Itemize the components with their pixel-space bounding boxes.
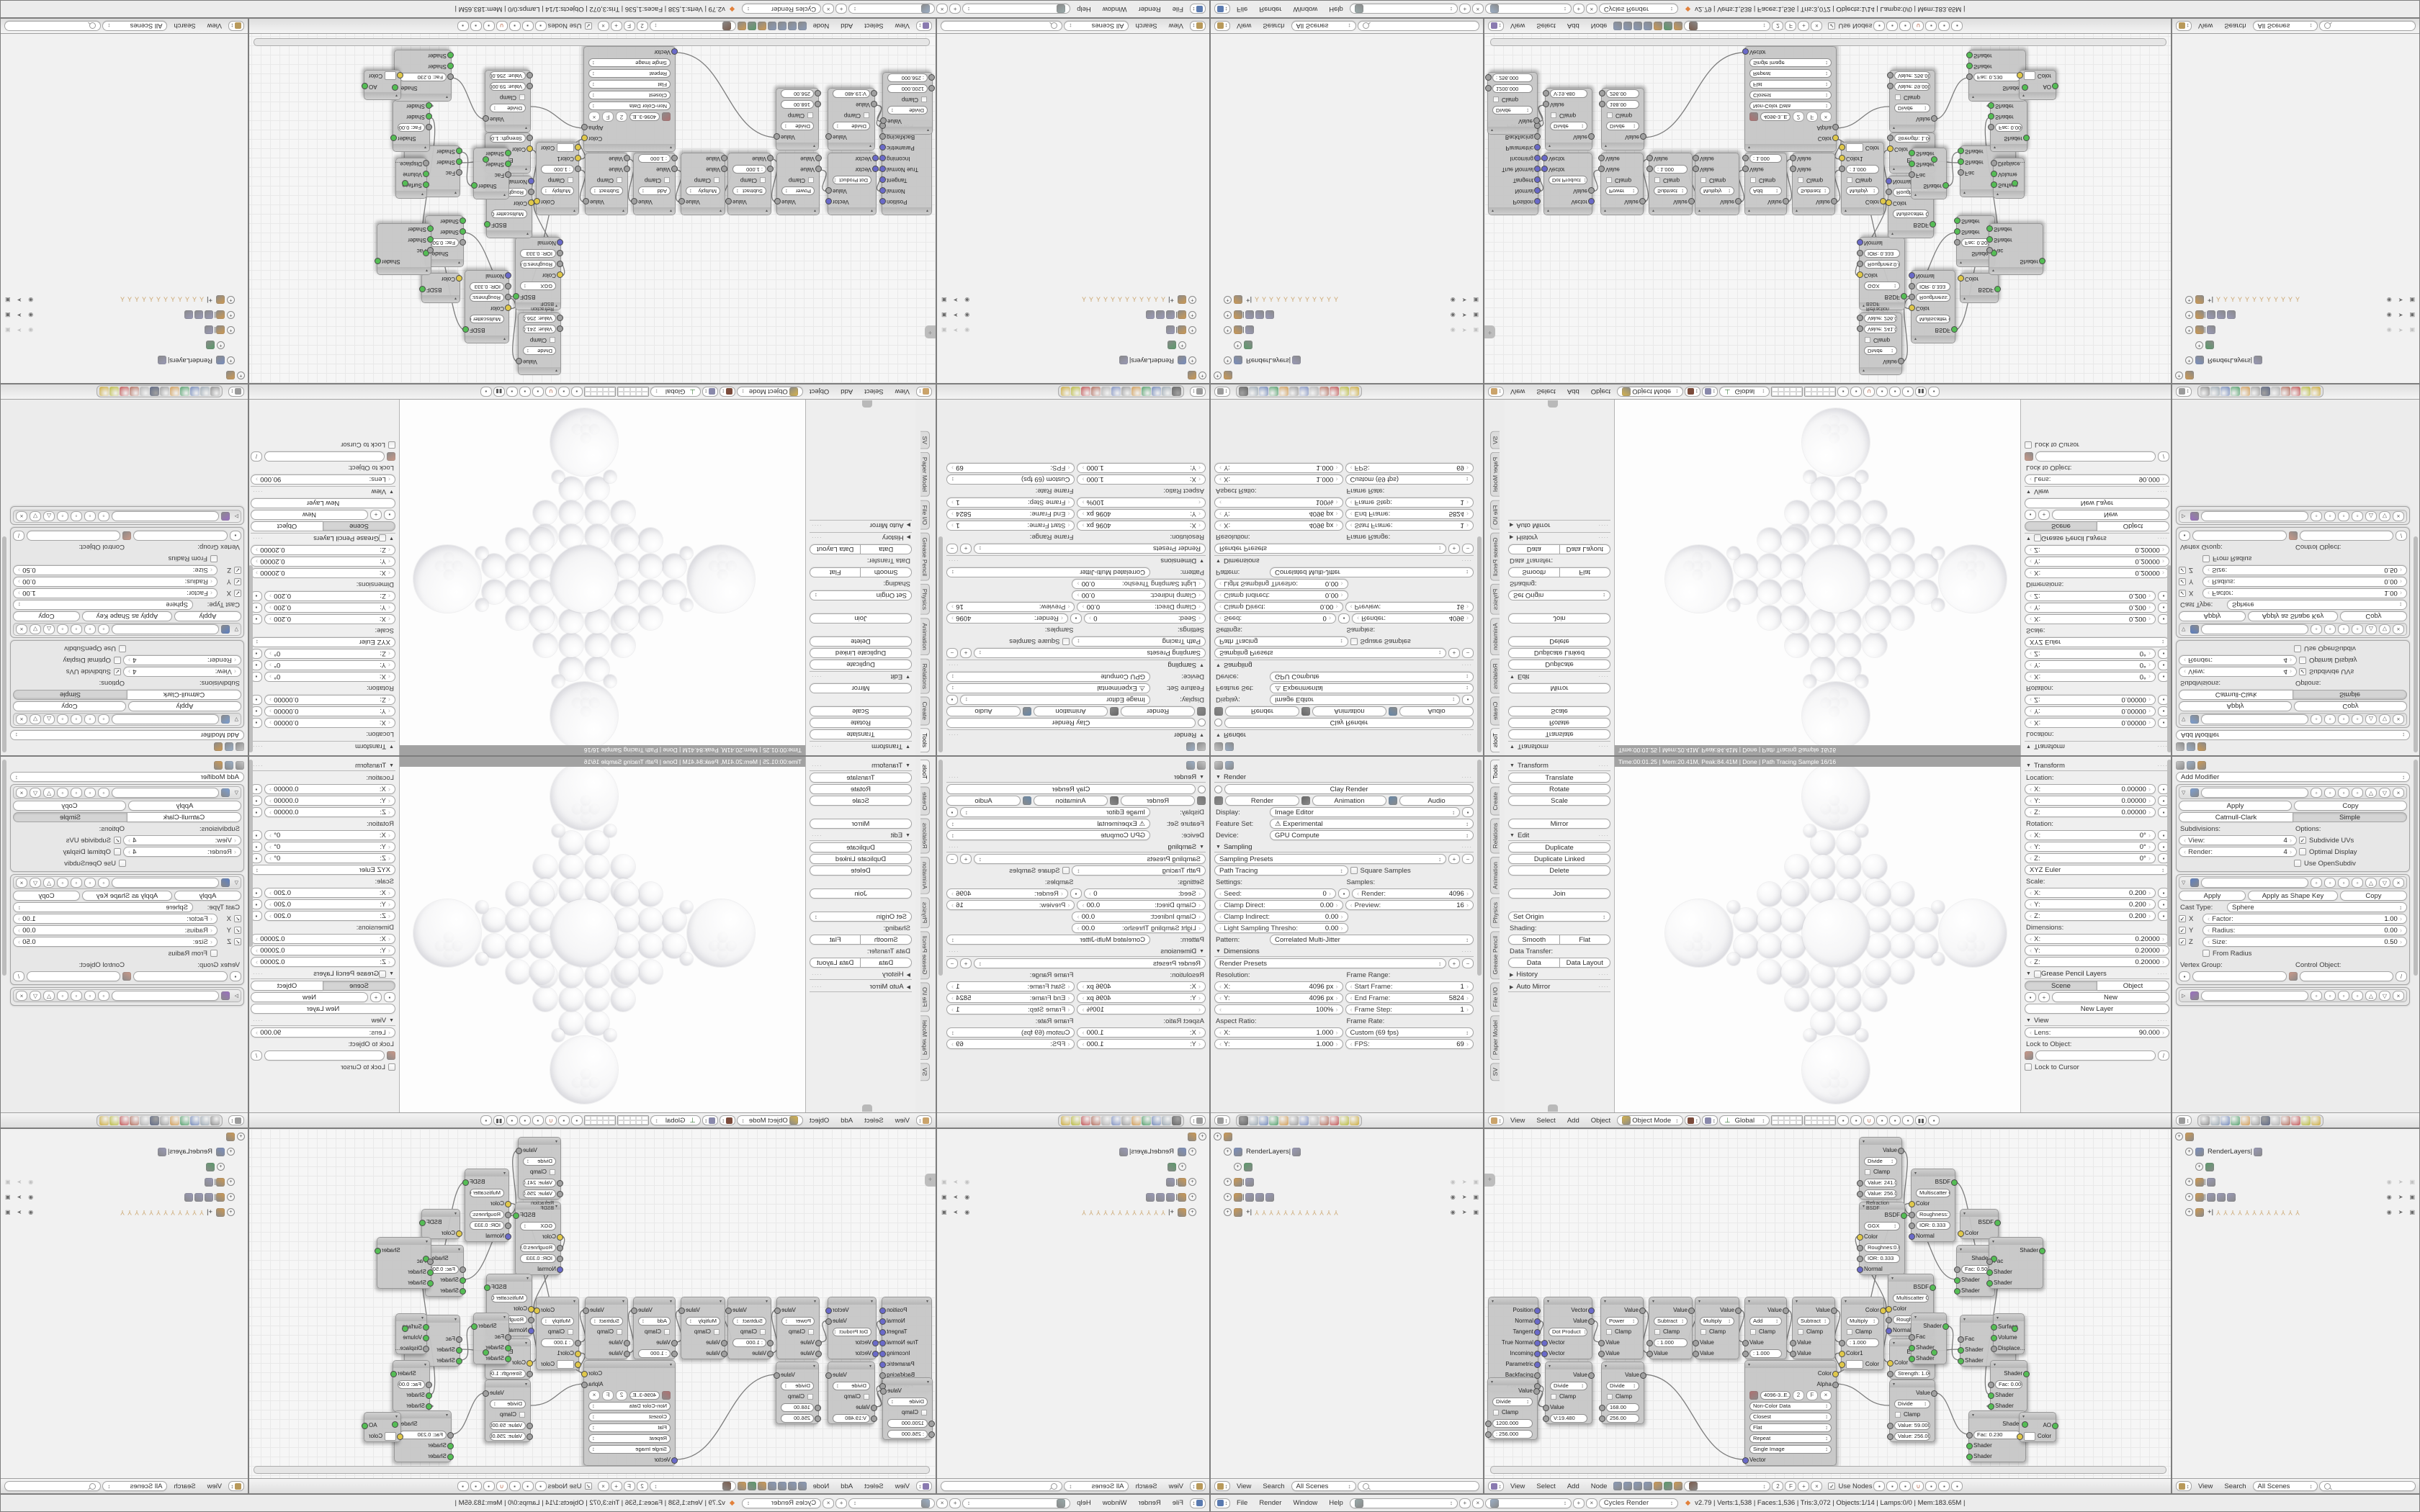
node-dropdown[interactable]: Subtract↕ bbox=[1797, 187, 1830, 196]
node-menu-select[interactable]: Select bbox=[1531, 1482, 1560, 1490]
node-number-field[interactable]: V:19.480 bbox=[1550, 90, 1587, 99]
input-socket-sh[interactable] bbox=[505, 1345, 511, 1351]
input-socket-vec[interactable] bbox=[872, 1351, 879, 1357]
output-socket-val[interactable] bbox=[1639, 198, 1646, 204]
node-dropdown[interactable]: Divide↕ bbox=[1894, 104, 1930, 113]
cast-modifier-icon[interactable] bbox=[2190, 878, 2199, 887]
toolshelf-tab-relations[interactable]: Relations bbox=[1490, 658, 1500, 693]
radio-icon[interactable] bbox=[1198, 719, 1206, 727]
modifier-icon[interactable] bbox=[1146, 311, 1155, 320]
button-animation[interactable]: Animation bbox=[1312, 796, 1386, 806]
outliner-row[interactable]: + bbox=[1211, 368, 1483, 383]
node[interactable]: ▾Refraction BSDFBSDFGGX↕ColorRoughnes:0.… bbox=[1859, 237, 1905, 310]
input-socket-sh[interactable] bbox=[1986, 1280, 1993, 1287]
input-socket-value[interactable] bbox=[505, 1223, 511, 1229]
select-image-editor[interactable]: Image Editor↕ bbox=[960, 807, 1150, 817]
scenes-filter-select[interactable]: All Scenes↕ bbox=[2253, 1481, 2318, 1491]
node-header[interactable]: ▾ bbox=[1912, 1313, 1946, 1320]
input-field[interactable] bbox=[2035, 451, 2156, 462]
input-socket-value[interactable] bbox=[1543, 90, 1549, 96]
checkbox-y[interactable]: ✓Y bbox=[220, 927, 241, 935]
outliner-menu-view[interactable]: View bbox=[1164, 22, 1188, 30]
modifier-render-toggle-icon[interactable]: ▫ bbox=[98, 714, 109, 724]
button-apply[interactable]: Apply bbox=[2179, 701, 2292, 711]
info-menu-file[interactable]: File bbox=[1232, 5, 1252, 13]
node-number-field[interactable]: : 1.000 bbox=[1654, 166, 1688, 174]
node[interactable]: ▾ShaderFac: 0.000ShaderShader bbox=[1990, 100, 2027, 152]
node-menu-view[interactable]: View bbox=[890, 1482, 915, 1490]
input-socket-val[interactable] bbox=[721, 155, 727, 161]
toolshelf-tab-create[interactable]: Create bbox=[921, 787, 931, 816]
checkbox-box[interactable] bbox=[1350, 638, 1358, 645]
modifier-delete-icon[interactable]: × bbox=[16, 878, 27, 888]
node[interactable]: ▾ValueSubtract↕Clamp: 1.000Value bbox=[1649, 153, 1693, 215]
input-socket-value[interactable] bbox=[1887, 135, 1894, 141]
input-field[interactable] bbox=[264, 451, 385, 462]
number-field[interactable]: Y:1.000 bbox=[1077, 1039, 1206, 1049]
unlink-icon[interactable]: × bbox=[823, 1498, 834, 1508]
outliner-row[interactable]: + bbox=[937, 338, 1209, 353]
number-field[interactable]: Size:0.50 bbox=[13, 565, 218, 575]
node-collapse-icon[interactable]: ▾ bbox=[871, 209, 873, 214]
number-field[interactable]: 100% bbox=[1214, 1004, 1343, 1014]
modifier-render-toggle-icon[interactable]: ▫ bbox=[2311, 624, 2322, 634]
node-dropdown[interactable]: Add↕ bbox=[638, 1317, 671, 1326]
checkbox-box[interactable] bbox=[1607, 1394, 1613, 1400]
select-correlated-multi-jitter[interactable]: Correlated Multi-Jitter↕ bbox=[946, 567, 1150, 577]
input-socket-value[interactable] bbox=[526, 1371, 533, 1377]
use-nodes-checkbox[interactable]: ✓Use Nodes bbox=[548, 1482, 592, 1490]
toolshelf-tab-tools[interactable]: Tools bbox=[1490, 760, 1500, 784]
node-menu-add[interactable]: Add bbox=[1562, 22, 1585, 30]
eyedropper-icon[interactable]: / bbox=[251, 451, 262, 462]
particles-tab-icon[interactable] bbox=[1071, 1116, 1080, 1125]
button-delete[interactable]: Delete bbox=[810, 865, 912, 876]
unlink-icon[interactable]: × bbox=[1472, 1498, 1484, 1508]
input-socket-value[interactable] bbox=[1857, 1191, 1863, 1197]
select-render-presets[interactable]: Render Presets↕ bbox=[1214, 958, 1446, 968]
input-socket-val[interactable] bbox=[815, 1351, 822, 1357]
button-apply[interactable]: Apply bbox=[174, 891, 241, 901]
checkbox-box[interactable] bbox=[1895, 95, 1901, 101]
input-socket-sh[interactable] bbox=[1954, 228, 1960, 235]
expand-icon[interactable]: + bbox=[2185, 311, 2193, 319]
node-header[interactable]: ▾ bbox=[1912, 1169, 1955, 1176]
node-dropdown[interactable]: Divide↕ bbox=[781, 1382, 814, 1390]
paste-nodes-icon[interactable]: ▪ bbox=[1951, 1481, 1963, 1491]
eye-toggle-icon[interactable]: ◉ bbox=[2387, 312, 2392, 318]
unlink-icon[interactable]: × bbox=[598, 1481, 609, 1491]
color-swatch[interactable] bbox=[557, 1360, 574, 1369]
mesh-data-icon[interactable] bbox=[216, 1178, 225, 1187]
toolshelf-tab-physics[interactable]: Physics bbox=[1490, 584, 1500, 615]
node-collapse-icon[interactable]: ▾ bbox=[1891, 232, 1894, 237]
cursor-toggle-icon[interactable]: ➤ bbox=[1462, 1194, 1467, 1200]
viewport-menu-select[interactable]: Select bbox=[859, 388, 888, 396]
input-socket-sh[interactable] bbox=[505, 1356, 511, 1362]
add-icon[interactable]: + bbox=[2038, 992, 2050, 1002]
node[interactable]: ▾ValueMultiply↕ClampValueValue bbox=[681, 1297, 725, 1359]
checkbox-lock-to-cursor[interactable]: Lock to Cursor bbox=[2025, 441, 2169, 449]
expand-icon[interactable]: + bbox=[1224, 326, 1232, 334]
node-header[interactable]: ▾Refraction BSDF bbox=[1860, 302, 1904, 310]
node[interactable]: ▾ValueSubtract↕Clamp: 1.000Value bbox=[1649, 1297, 1693, 1359]
expand-icon[interactable]: + bbox=[217, 341, 225, 349]
node-dropdown[interactable]: Multiscatter GGX↕ bbox=[1916, 315, 1950, 324]
eyedropper-icon[interactable]: / bbox=[2396, 531, 2407, 541]
node[interactable]: ▾ValueMultiply↕ClampValueValue bbox=[1695, 153, 1739, 215]
mesh-icon[interactable] bbox=[1255, 1193, 1264, 1202]
number-field[interactable]: Y:0.20000 bbox=[2025, 945, 2169, 955]
node-header[interactable]: ▾ bbox=[777, 207, 819, 215]
snap-mode-icon[interactable]: ▪ bbox=[483, 1481, 495, 1491]
node-header[interactable]: ▾ bbox=[393, 1361, 429, 1368]
output-socket-vec[interactable] bbox=[1534, 1362, 1541, 1368]
screen-layout-icon[interactable] bbox=[1355, 5, 1363, 14]
checkbox-box[interactable] bbox=[550, 1169, 555, 1175]
node-number-field[interactable]: : 1.000 bbox=[1749, 155, 1782, 163]
node-number-field[interactable]: : 256.000 bbox=[887, 1430, 928, 1439]
eyedropper-icon[interactable]: / bbox=[13, 971, 24, 981]
output-socket-vec[interactable] bbox=[1588, 1308, 1595, 1314]
input-field[interactable] bbox=[2035, 1050, 2156, 1061]
scene-icon[interactable] bbox=[2185, 1133, 2194, 1141]
modifier-cage-toggle-icon[interactable]: ▫ bbox=[57, 511, 68, 521]
node-header[interactable]: ▾ bbox=[1488, 1378, 1537, 1385]
layer-cell[interactable] bbox=[1772, 387, 1778, 392]
toolshelf-scroll-nub[interactable] bbox=[1548, 1104, 1558, 1112]
pin-icon[interactable]: ▪ bbox=[535, 1481, 547, 1491]
button-mirror[interactable]: Mirror bbox=[1508, 683, 1610, 693]
add-modifier-select[interactable]: Add Modifier↕ bbox=[10, 730, 244, 740]
compositing-nodes-icon[interactable] bbox=[1623, 22, 1632, 30]
node-number-field[interactable]: Strength: 1.000 bbox=[1894, 1369, 1930, 1378]
output-socket-val[interactable] bbox=[1831, 198, 1837, 204]
pin-icon[interactable]: ▪ bbox=[1873, 21, 1885, 31]
input-socket-value[interactable] bbox=[1599, 101, 1605, 107]
input-socket-vec[interactable] bbox=[1886, 178, 1892, 184]
modifier-render-toggle-icon[interactable]: ▫ bbox=[98, 788, 109, 798]
modifier-collapse-icon[interactable]: ▷ bbox=[2182, 993, 2185, 999]
expand-icon[interactable]: + bbox=[227, 296, 235, 304]
input-socket-val[interactable] bbox=[1543, 101, 1549, 107]
material-select[interactable]: ↕ bbox=[1684, 1481, 1770, 1491]
node-header[interactable]: ▾ bbox=[1991, 1361, 2027, 1368]
toolshelf-scroll-nub[interactable] bbox=[862, 400, 872, 408]
button-audio[interactable]: Audio bbox=[946, 796, 1021, 806]
camera-toggle-icon[interactable]: ▣ bbox=[5, 1179, 11, 1185]
outliner-row[interactable]: + | ◉➤▣ bbox=[1211, 1189, 1483, 1205]
modifier-move-up-icon[interactable]: △ bbox=[2365, 991, 2377, 1001]
checkbox-box[interactable] bbox=[119, 860, 126, 867]
input-socket-val[interactable] bbox=[1598, 1351, 1605, 1357]
node-header[interactable]: ▾ bbox=[1544, 1297, 1592, 1305]
node-editor-grid[interactable]: +▾PositionNormalTangentTrue NormalIncomi… bbox=[249, 33, 936, 383]
checkbox-box[interactable] bbox=[664, 178, 670, 184]
button-animation[interactable]: Animation bbox=[1034, 796, 1108, 806]
checkbox-x[interactable]: ✓X bbox=[2179, 590, 2200, 598]
layer-cell[interactable] bbox=[1790, 392, 1796, 396]
eye-toggle-icon[interactable]: ◉ bbox=[964, 312, 969, 318]
render-opengl-icon[interactable]: ▪ bbox=[1889, 387, 1901, 397]
lamp-icon[interactable] bbox=[1178, 1193, 1186, 1202]
output-socket-vec[interactable] bbox=[879, 1329, 886, 1336]
image-name-field[interactable]: 4096-3..E... bbox=[1760, 113, 1791, 122]
number-field[interactable]: Y:0.20000 bbox=[251, 945, 395, 955]
object-tab-icon[interactable] bbox=[2241, 387, 2250, 397]
layer-cell[interactable] bbox=[1811, 1120, 1817, 1125]
toolshelf-tab-tools[interactable]: Tools bbox=[921, 728, 931, 752]
output-socket-sh[interactable] bbox=[390, 1371, 397, 1377]
segment-smooth[interactable]: Smooth bbox=[861, 567, 913, 577]
unlink-icon[interactable]: × bbox=[1820, 1390, 1832, 1400]
viewport-editor-type-button[interactable]: ↕ bbox=[916, 1115, 932, 1125]
select-set-origin[interactable]: Set Origin↕ bbox=[810, 590, 912, 600]
select-path-tracing[interactable]: Path Tracing↕ bbox=[1214, 636, 1348, 647]
number-field[interactable]: X:0.20000 bbox=[251, 568, 395, 578]
checkbox-z[interactable]: ✓Z bbox=[220, 938, 241, 946]
number-field[interactable]: FPS:69 bbox=[1345, 1039, 1474, 1049]
node-header[interactable]: ▾ bbox=[1793, 1297, 1834, 1305]
layer-cell[interactable] bbox=[1784, 387, 1790, 392]
node[interactable]: ▾ColorMultiply↕Clamp: 1.000Color1Color bbox=[1841, 1297, 1884, 1370]
node-collapse-icon[interactable]: ▾ bbox=[927, 1380, 929, 1385]
output-socket-val[interactable] bbox=[631, 198, 637, 204]
mode-shield-icon[interactable] bbox=[789, 387, 798, 396]
output-socket-val[interactable] bbox=[1534, 133, 1541, 140]
camera-toggle-icon[interactable]: ▣ bbox=[1473, 1194, 1479, 1200]
button-mirror[interactable]: Mirror bbox=[810, 819, 912, 829]
pivot-center-button[interactable]: ↕ bbox=[1702, 1115, 1718, 1125]
object-cube-icon[interactable] bbox=[123, 972, 132, 981]
unlink-icon[interactable]: × bbox=[1586, 1498, 1597, 1508]
output-socket-val[interactable] bbox=[1832, 1382, 1839, 1388]
output-socket-val[interactable] bbox=[1931, 115, 1937, 122]
input-field[interactable] bbox=[134, 971, 228, 981]
snap-mode-icon[interactable]: ▪ bbox=[1925, 21, 1937, 31]
node-number-field[interactable]: 168.00 bbox=[1606, 1403, 1639, 1412]
segment-data[interactable]: Data bbox=[861, 544, 913, 554]
output-socket-val[interactable] bbox=[774, 1308, 781, 1314]
input-socket-sh[interactable] bbox=[1986, 236, 1993, 243]
node-dropdown[interactable]: Closest↕ bbox=[588, 1413, 671, 1421]
node-header[interactable]: ▾ bbox=[1860, 1138, 1901, 1145]
node-number-field[interactable]: 256.00 bbox=[1606, 1414, 1639, 1423]
node-collapse-icon[interactable]: ▾ bbox=[814, 209, 816, 214]
node-collapse-icon[interactable]: ▾ bbox=[1748, 1299, 1750, 1304]
checkbox-box[interactable] bbox=[1606, 1329, 1612, 1335]
modifier-name-field[interactable] bbox=[2201, 624, 2308, 634]
select-custom-fps-[interactable]: Custom (69 fps)↕ bbox=[946, 474, 1075, 485]
renderlayer-icon[interactable] bbox=[1178, 356, 1186, 365]
node-header[interactable]: ▾ bbox=[2020, 1413, 2056, 1420]
expand-icon[interactable]: + bbox=[1188, 1178, 1196, 1186]
checkbox-box[interactable]: ✓ bbox=[2179, 590, 2186, 597]
pencil-icon[interactable]: ▪ bbox=[2025, 510, 2036, 520]
node-header[interactable]: ▾ bbox=[1989, 267, 2043, 274]
output-socket-val[interactable] bbox=[483, 1390, 489, 1397]
input-socket-val[interactable] bbox=[1742, 1340, 1749, 1346]
vertexgroup-icon[interactable]: ▪ bbox=[230, 531, 241, 541]
output-socket-sh[interactable] bbox=[462, 1179, 469, 1186]
add-modifier-select[interactable]: Add Modifier↕ bbox=[2176, 772, 2410, 782]
remove-icon[interactable]: − bbox=[946, 854, 958, 864]
checkbox-box[interactable] bbox=[2299, 848, 2306, 855]
node[interactable]: ▾ValueAdd↕ClampValue: 1.000 bbox=[1744, 1297, 1787, 1359]
clock-icon[interactable]: ▪ bbox=[1338, 888, 1350, 899]
layer-cell[interactable] bbox=[1817, 387, 1823, 392]
cursor-toggle-icon[interactable]: ➤ bbox=[2398, 1179, 2403, 1185]
select-custom-fps-[interactable]: Custom (69 fps)↕ bbox=[1345, 1027, 1474, 1038]
button-clay-render[interactable]: Clay Render bbox=[946, 784, 1196, 794]
button-audio[interactable]: Audio bbox=[1399, 796, 1474, 806]
number-field[interactable]: Preview:16 bbox=[1345, 602, 1474, 612]
node-collapse-icon[interactable]: ▾ bbox=[1698, 1299, 1700, 1304]
material-tab-icon[interactable] bbox=[1091, 387, 1101, 397]
layer-cell[interactable] bbox=[618, 392, 624, 396]
button-mirror[interactable]: Mirror bbox=[810, 683, 912, 693]
input-socket-sh[interactable] bbox=[427, 1269, 434, 1276]
panel-header-dimensions[interactable]: ▼Dimensions···· bbox=[946, 555, 1206, 565]
node-header[interactable]: ▾ bbox=[485, 1380, 530, 1387]
expand-icon[interactable]: + bbox=[2175, 372, 2183, 379]
data-tab-icon[interactable] bbox=[1309, 1116, 1319, 1125]
modifier-move-up-icon[interactable]: △ bbox=[2365, 788, 2377, 798]
modifier-editmode-toggle-icon[interactable]: ▫ bbox=[71, 991, 82, 1001]
output-socket-sh[interactable] bbox=[1901, 1212, 1907, 1219]
button-copy[interactable]: Copy bbox=[13, 891, 80, 901]
node-header[interactable]: ▾ bbox=[828, 1362, 874, 1369]
number-field[interactable]: Light Sampling Thresho:0.00 bbox=[1072, 579, 1206, 589]
node-dropdown[interactable]: Non-Color Data↕ bbox=[1749, 102, 1832, 111]
node-collapse-icon[interactable]: ▾ bbox=[766, 1299, 768, 1304]
modifier-collapse-icon[interactable]: ▽ bbox=[2182, 880, 2185, 886]
number-field[interactable]: Z:0.200 bbox=[2025, 911, 2156, 921]
checkbox-box[interactable] bbox=[864, 1394, 869, 1400]
button-copy[interactable]: Copy bbox=[2294, 701, 2407, 711]
input-socket-value[interactable] bbox=[1485, 1431, 1492, 1438]
modifier-view-toggle-icon[interactable]: ▫ bbox=[2324, 624, 2336, 634]
output-socket-val[interactable] bbox=[1588, 1318, 1595, 1325]
input-socket-val[interactable] bbox=[721, 1351, 727, 1357]
panel-header-edit[interactable]: ▼Edit···· bbox=[810, 831, 912, 841]
node-collapse-icon[interactable]: ▾ bbox=[555, 1139, 557, 1144]
modifier-collapse-icon[interactable]: ▽ bbox=[2182, 716, 2185, 722]
segment-scene[interactable]: Scene bbox=[323, 521, 395, 531]
subsurf-modifier-icon[interactable] bbox=[2190, 788, 2199, 797]
panel-header-dimensions[interactable]: ▼Dimensions···· bbox=[1214, 555, 1474, 565]
outliner-row[interactable]: + bbox=[2172, 338, 2419, 353]
screencast-icon[interactable]: ▪ bbox=[480, 387, 492, 397]
info-editor-type-button[interactable]: ↕ bbox=[1214, 1498, 1230, 1508]
layer-cell[interactable] bbox=[1796, 1120, 1802, 1125]
pivot-center-button[interactable]: ↕ bbox=[1702, 387, 1718, 397]
toolshelf-tab-file-i-o[interactable]: File I/O bbox=[921, 500, 931, 529]
button-copy[interactable]: Copy bbox=[2340, 891, 2407, 901]
button-join[interactable]: Join bbox=[1508, 888, 1610, 899]
input-socket-sh[interactable] bbox=[447, 1454, 454, 1460]
node-dropdown[interactable]: Repeat↕ bbox=[1749, 70, 1832, 78]
orientation-select[interactable]: ⊥Global↕ bbox=[650, 387, 701, 397]
output-socket-vec[interactable] bbox=[1534, 1329, 1541, 1336]
snap-target-icon[interactable]: ▪ bbox=[558, 1115, 570, 1125]
outliner-search-field[interactable] bbox=[941, 1481, 1062, 1491]
checkbox-box[interactable] bbox=[210, 950, 218, 957]
layer-cell[interactable] bbox=[1805, 392, 1811, 396]
node-header[interactable]: ▾ bbox=[1842, 207, 1883, 215]
input-socket-col[interactable] bbox=[1857, 271, 1863, 278]
number-field[interactable]: X:0.00000 bbox=[264, 718, 395, 728]
number-field[interactable]: Y:4096 px bbox=[1214, 509, 1343, 519]
node[interactable]: ▾ValueDivide↕ClampValueV:19.480 bbox=[1545, 88, 1592, 150]
material-slot-count[interactable]: 2 bbox=[1772, 21, 1783, 31]
object-cube-icon[interactable] bbox=[387, 452, 395, 461]
node-header[interactable]: ▾Refraction BSDF bbox=[1860, 1202, 1904, 1210]
mesh-icon[interactable] bbox=[194, 1193, 203, 1202]
pivot-center-button[interactable]: ↕ bbox=[702, 387, 718, 397]
input-socket-value[interactable] bbox=[526, 1423, 533, 1429]
cursor-toggle-icon[interactable]: ➤ bbox=[1462, 297, 1467, 303]
layer-cell[interactable] bbox=[1805, 1120, 1811, 1125]
input-socket-sh[interactable] bbox=[1988, 1392, 1994, 1399]
modifier-delete-icon[interactable]: × bbox=[2393, 624, 2404, 634]
context-render-icon[interactable] bbox=[1186, 761, 1195, 770]
eye-toggle-icon[interactable]: ◉ bbox=[964, 1194, 969, 1200]
node-number-field[interactable]: Roughness: 0.000 bbox=[1916, 1210, 1950, 1219]
input-socket-val[interactable] bbox=[1598, 1340, 1605, 1346]
camera-toggle-icon[interactable]: ▣ bbox=[1473, 1209, 1479, 1215]
render-tab-icon[interactable] bbox=[2200, 387, 2210, 397]
checkbox-box[interactable] bbox=[714, 178, 720, 184]
panel-header-transform[interactable]: ▼Transform···· bbox=[810, 761, 912, 771]
output-socket-sh[interactable] bbox=[1901, 293, 1907, 300]
input-socket-vec[interactable] bbox=[671, 1457, 678, 1464]
node-dropdown[interactable]: Closest↕ bbox=[1749, 91, 1832, 100]
modifier-view-toggle-icon[interactable]: ▫ bbox=[84, 991, 96, 1001]
select-xyz-euler[interactable]: XYZ Euler↕ bbox=[2025, 865, 2169, 875]
number-field[interactable]: X:1.000 bbox=[1077, 1027, 1206, 1038]
object-tab-icon[interactable] bbox=[170, 387, 179, 397]
output-socket-val[interactable] bbox=[825, 1318, 832, 1325]
viewport-shading-button[interactable]: ↕ bbox=[1685, 1115, 1700, 1125]
node-collapse-icon[interactable]: ▾ bbox=[1604, 1299, 1606, 1304]
node-dropdown[interactable]: Non-Color Data↕ bbox=[1749, 1402, 1832, 1410]
output-socket-val[interactable] bbox=[1832, 124, 1839, 130]
input-socket-val[interactable] bbox=[1598, 166, 1605, 172]
panel-header-sampling[interactable]: ▼Sampling···· bbox=[946, 842, 1206, 852]
node[interactable]: ▾ShaderFacShaderShader bbox=[1989, 1237, 2043, 1289]
layer-cell[interactable] bbox=[1784, 1120, 1790, 1125]
mesh-data-icon[interactable] bbox=[1234, 1178, 1242, 1187]
outliner-search-field[interactable] bbox=[941, 21, 1062, 31]
modifier-view-toggle-icon[interactable]: ▫ bbox=[84, 714, 96, 724]
select-sampling-presets[interactable]: Sampling Presets↕ bbox=[974, 854, 1206, 864]
shader-nodes-icon[interactable] bbox=[1613, 1482, 1622, 1490]
panel-header-edit[interactable]: ▼Edit···· bbox=[1508, 831, 1610, 841]
outliner-row[interactable]: + | ◉➤▣ bbox=[2172, 1189, 2419, 1205]
button-audio[interactable]: Audio bbox=[946, 706, 1021, 716]
segment-simple[interactable]: Simple bbox=[13, 812, 127, 822]
node-number-field[interactable]: Roughnes:0.000 bbox=[1864, 1243, 1900, 1252]
node-header[interactable]: ▾ bbox=[1649, 1297, 1692, 1305]
number-field[interactable]: Lens:90.000 bbox=[251, 1027, 395, 1038]
number-field[interactable]: X:0.00000 bbox=[264, 784, 395, 794]
node-collapse-icon[interactable]: ▾ bbox=[1796, 209, 1798, 214]
segment-flat[interactable]: Flat bbox=[810, 935, 861, 945]
cursor-toggle-icon[interactable]: ➤ bbox=[1462, 327, 1467, 333]
checkbox-box[interactable] bbox=[1798, 1329, 1803, 1335]
renderlayer-icon[interactable] bbox=[158, 1148, 166, 1156]
